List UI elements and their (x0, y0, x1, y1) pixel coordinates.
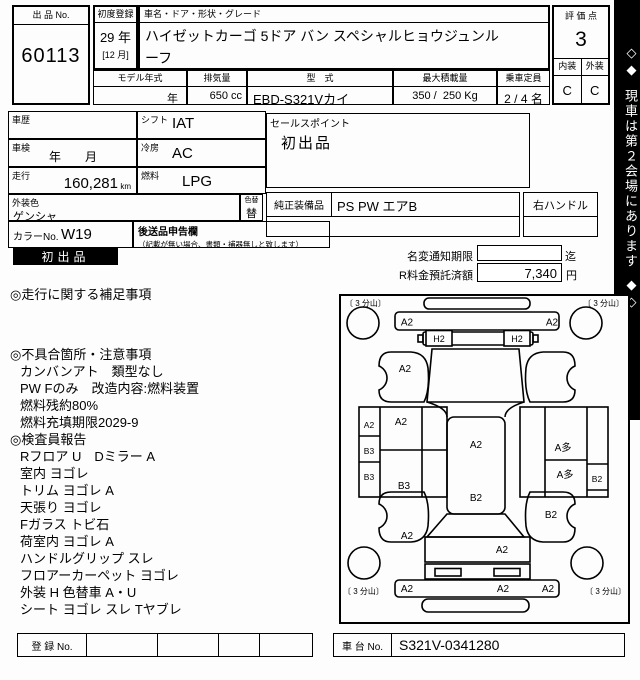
damage-diagram: 〔 3 分山〕 〔 3 分山〕 〔 3 分山〕 〔 3 分山〕 A2 A2 H2… (341, 296, 628, 622)
model-code-value: EBD-S321Vカイ (248, 87, 392, 108)
capacity-label: 乗車定員 (498, 71, 549, 87)
first-reg-year: 29 年 (95, 27, 136, 46)
wheel-rear-right (571, 547, 603, 579)
sales-point-label: セールスポイント (270, 115, 350, 130)
wheel-rear-left (348, 547, 380, 579)
registration-no-cell (158, 634, 219, 656)
inspector-item: Fガラス トビ石 (10, 516, 332, 533)
mark-side-left-2: B3 (364, 446, 375, 456)
score-value: 3 (554, 22, 608, 59)
color-no-label: カラーNo. (13, 228, 59, 243)
windshield (427, 349, 524, 402)
auction-no-value: 60113 (14, 25, 88, 87)
mark-headlamp-right: H2 (511, 334, 523, 344)
later-items-box: 後送品申告欄 （記載が無い場合、書類・補器無しと致します） (133, 221, 330, 248)
max-load-cell: 最大積載量 350 / 250 Kg (393, 70, 497, 105)
later-items-label: 後送品申告欄 (134, 222, 329, 238)
mark-door-right-top: A多 (555, 441, 572, 454)
model-code-label: 型 式 (248, 71, 392, 87)
mark-side-left-3: B3 (364, 472, 375, 482)
mark-headlamp-left: H2 (433, 334, 445, 344)
handle-value: 右ハンドル (524, 193, 597, 217)
model-year-value: 年 (94, 87, 186, 106)
banner-text: 現車は第２会場にあります (614, 89, 640, 269)
equipment-value: PS PW エアB (332, 193, 417, 216)
mark-roof-rear: B2 (470, 493, 483, 504)
history-cell: 車歴 (8, 111, 137, 139)
wheel-front-right (570, 307, 602, 339)
first-reg-box: 初度登録 29 年 [12 月] (93, 5, 138, 70)
first-listing-badge: 初出品 (13, 248, 118, 265)
defect-item: カンバンアト 類型なし (10, 363, 332, 380)
mark-door-right-bottom: B2 (545, 510, 558, 521)
notes-column: ◎走行に関する補足事項 ◎不具合箇所・注意事項 カンバンアト 類型なし PW F… (10, 286, 332, 618)
mark-roof-front: A2 (470, 440, 483, 451)
defect-item: 燃料充填期限2029-9 (10, 414, 332, 431)
recycle-fee-value: 7,340 (478, 264, 561, 281)
mark-door-right-mid: A多 (557, 468, 574, 481)
inspector-item: 室内 ヨゴレ (10, 465, 332, 482)
first-reg-label: 初度登録 (95, 7, 136, 23)
color-change-cell: 色替 替 (240, 194, 263, 221)
tire-label-rear-left: 〔 3 分山〕 (343, 586, 384, 596)
inspector-item: Rフロア U Dミラー A (10, 448, 332, 465)
sales-point-value: 初出品 (281, 132, 332, 153)
pillar-lines (427, 402, 524, 417)
mileage-label: 走行 (12, 169, 30, 182)
rear-bumper (395, 580, 559, 597)
defects-title: ◎不具合箇所・注意事項 (10, 346, 332, 363)
auction-no-box: 出 品 No. 60113 (12, 5, 90, 105)
recycle-fee-label: R料金預託済額 (360, 267, 473, 283)
mileage-unit: km (120, 182, 131, 191)
color-no-cell: カラーNo. W19 (8, 221, 133, 248)
inspection-label: 車検 (12, 141, 30, 154)
chassis-no-value: S321V-0341280 (392, 634, 499, 656)
inspector-item: 天張り ヨゴレ (10, 499, 332, 516)
ac-label: 冷房 (141, 141, 159, 154)
mark-door-left-bottom: B3 (398, 481, 411, 492)
auction-sheet: 出 品 No. 60113 初度登録 29 年 [12 月] 車名・ドア・形状・… (0, 0, 640, 680)
fuel-value: LPG (182, 173, 212, 190)
chassis-no-label: 車 台 No. (334, 634, 392, 656)
front-bumper (395, 312, 559, 330)
vehicle-name-line1: ハイゼットカーゴ 5ドア バン スペシャルヒョウジュンル (140, 23, 548, 46)
inspector-title: ◎検査員報告 (10, 431, 332, 448)
capacity-value: 2 / 4 名 (498, 87, 549, 107)
inspector-item: 荷室内 ヨゴレ A (10, 533, 332, 550)
name-change-label: 名変通知期限 (360, 248, 473, 264)
interior-grade: C (554, 76, 582, 105)
mark-front-bumper-right: A2 (546, 318, 559, 329)
headlamp-tab-left (418, 335, 423, 342)
rear-bottom-strip (422, 599, 529, 612)
shift-value: IAT (172, 115, 194, 132)
fuel-label: 燃料 (141, 169, 159, 182)
vehicle-name-label: 車名・ドア・形状・グレード (140, 7, 548, 23)
defect-item: 燃料残約80% (10, 397, 332, 414)
headlamp-tab-right (533, 335, 538, 342)
inspection-cell: 車検 年 月 (8, 139, 137, 167)
tail-lamp-right (494, 569, 520, 577)
damage-diagram-box: 〔 3 分山〕 〔 3 分山〕 〔 3 分山〕 〔 3 分山〕 A2 A2 H2… (339, 294, 630, 624)
inspector-item: ハンドルグリップ スレ (10, 550, 332, 567)
exterior-grade: C (582, 76, 609, 105)
model-year-label: モデル年式 (94, 71, 186, 87)
registration-no-box: 登 録 No. (17, 633, 313, 657)
mark-rear-bumper-center: A2 (497, 584, 510, 595)
displacement-value: 650 cc (188, 87, 246, 102)
banner-top-diamond-icon: ◇◆ (614, 46, 640, 80)
color-no-value: W19 (61, 226, 92, 243)
front-top-strip (424, 298, 530, 309)
inspector-item: フロアーカーペット ヨゴレ (10, 567, 332, 584)
vehicle-name-box: 車名・ドア・形状・グレード ハイゼットカーゴ 5ドア バン スペシャルヒョウジュ… (138, 5, 550, 70)
fender-front-left (379, 352, 429, 402)
mark-fender-rear-left: A2 (401, 531, 414, 542)
exterior-color-cell: 外装色 ゲンシャ (8, 194, 240, 221)
mark-side-right-strip: B2 (592, 474, 603, 484)
sales-point-box: セールスポイント 初出品 (266, 113, 530, 188)
interior-label: 内装 (554, 59, 582, 75)
score-box: 評 価 点 3 内装 外装 C C (552, 5, 610, 105)
max-load-label: 最大積載量 (394, 71, 496, 87)
registration-no-cell (260, 634, 312, 656)
displacement-label: 排気量 (188, 71, 246, 87)
color-change-value: 替 (241, 205, 262, 221)
mark-rear-bumper-right: A2 (542, 584, 555, 595)
registration-no-label: 登 録 No. (18, 634, 87, 656)
model-code-cell: 型 式 EBD-S321Vカイ (247, 70, 393, 105)
max-load-value: 350 / 250 Kg (394, 87, 496, 102)
mileage-notes-title: ◎走行に関する補足事項 (10, 286, 332, 303)
model-year-cell: モデル年式 年 (93, 70, 187, 105)
mark-front-bumper-left: A2 (401, 318, 414, 329)
shift-cell: シフト IAT (137, 111, 266, 139)
rear-window (427, 514, 524, 537)
chassis-no-box: 車 台 No. S321V-0341280 (333, 633, 625, 657)
fuel-cell: 燃料 LPG (137, 167, 266, 194)
rear-panel (425, 537, 530, 562)
mileage-value: 160,281 (64, 175, 118, 192)
inspector-item: トリム ヨゴレ A (10, 482, 332, 499)
vehicle-name-line2: ーフ (140, 46, 548, 68)
exterior-label: 外装 (582, 59, 609, 75)
capacity-cell: 乗車定員 2 / 4 名 (497, 70, 550, 105)
auction-no-label: 出 品 No. (14, 7, 88, 25)
fender-front-right (526, 352, 576, 402)
inspector-item: 外装 H 色替車 A・U (10, 584, 332, 601)
mileage-cell: 走行 160,281 km (8, 167, 137, 194)
name-change-field (477, 245, 562, 261)
ac-cell: 冷房 AC (137, 139, 266, 167)
wheel-front-left (347, 307, 379, 339)
tire-label-front-left: 〔 3 分山〕 (345, 298, 386, 308)
shift-label: シフト (141, 113, 168, 126)
registration-no-cell (87, 634, 158, 656)
recycle-fee-unit: 円 (566, 267, 577, 283)
displacement-cell: 排気量 650 cc (187, 70, 247, 105)
defect-item: PW Fのみ 改造内容:燃料装置 (10, 380, 332, 397)
recycle-fee-field: 7,340 (477, 263, 562, 282)
inspection-value: 年 月 (49, 148, 97, 165)
mark-rear-bumper-left: A2 (401, 584, 414, 595)
first-reg-month: [12 月] (95, 48, 136, 61)
name-change-suffix: 迄 (565, 248, 576, 264)
tire-label-rear-right: 〔 3 分山〕 (585, 586, 626, 596)
ac-value: AC (172, 145, 193, 162)
mark-side-left-1: A2 (364, 420, 375, 430)
handle-box: 右ハンドル (523, 192, 598, 237)
mark-rear-panel: A2 (496, 545, 509, 556)
color-change-label: 色替 (241, 195, 262, 205)
later-items-note: （記載が無い場合、書類・補器無しと致します） (134, 238, 329, 250)
mark-door-left-top: A2 (395, 417, 408, 428)
mark-fender-front-left: A2 (399, 364, 412, 375)
registration-no-cell (219, 634, 260, 656)
equipment-label: 純正装備品 (267, 193, 332, 216)
tire-label-front-right: 〔 3 分山〕 (583, 298, 624, 308)
history-label: 車歴 (12, 113, 30, 126)
inspector-item: シート ヨゴレ スレ Tヤブレ (10, 601, 332, 618)
score-label: 評 価 点 (554, 7, 608, 22)
tail-lamp-left (435, 569, 461, 577)
